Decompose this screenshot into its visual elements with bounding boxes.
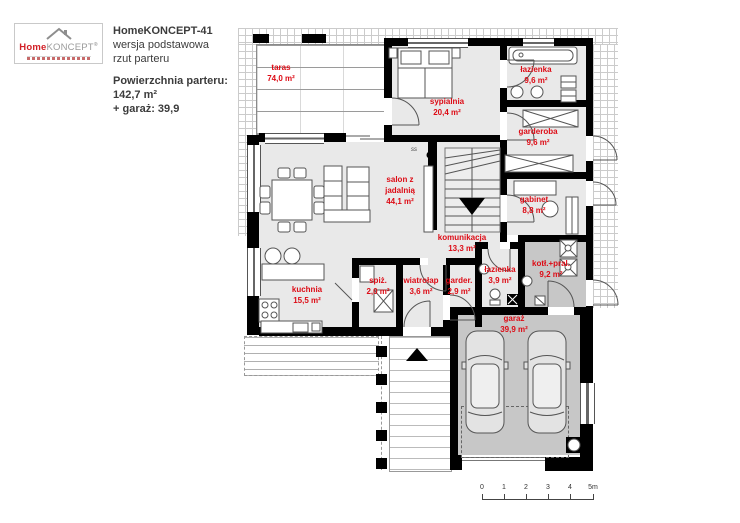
window-sypialnia — [408, 38, 468, 48]
room-label-taras: taras 74,0 m² — [267, 62, 295, 84]
room-label-garder: garder. 2,9 m² — [446, 275, 473, 297]
wall-garage-north — [574, 307, 593, 315]
scale-label: 5m — [588, 484, 598, 491]
door-opening-kotlownia — [586, 280, 593, 306]
stair-note-marker: ss — [411, 147, 417, 153]
window-garaz-east — [580, 383, 595, 424]
wall-east — [586, 38, 593, 138]
wall-interior — [518, 242, 525, 310]
room-label-lazienka-small: łazienka 3,9 m² — [484, 264, 515, 286]
area-value: 142,7 m² — [113, 88, 228, 102]
scale-bar: 0 1 2 3 4 5m — [480, 484, 602, 506]
floor-sypialnia — [392, 46, 500, 135]
project-version: wersja podstawowa — [113, 38, 228, 52]
wall-sypialnia-west — [384, 46, 392, 98]
scale-baseline — [482, 499, 593, 500]
wall-garage-west — [450, 315, 458, 470]
pergola-post — [376, 458, 387, 469]
wall-interior — [500, 107, 507, 112]
entrance-arrow — [406, 348, 428, 361]
pergola-post — [376, 402, 387, 413]
floor-plan-canvas: HomeKONCEPT® HomeKONCEPT-41 wersja podst… — [0, 0, 740, 523]
area-label: Powierzchnia parteru: — [113, 74, 228, 88]
wall-interior — [352, 302, 359, 327]
room-label-garderoba: garderoba 9,6 m² — [518, 126, 557, 148]
window-salon-west — [247, 145, 261, 212]
wall-interior — [518, 235, 586, 242]
sliding-door-taras — [346, 133, 384, 142]
drawing-title-block: HomeKONCEPT-41 wersja podstawowa rzut pa… — [113, 24, 228, 116]
door-opening-east-1 — [586, 136, 593, 161]
garage-door — [462, 457, 545, 465]
wall-interior — [500, 222, 507, 242]
wall-garage-east — [580, 315, 593, 383]
wall-interior — [500, 88, 507, 107]
room-label-spiz: spiż. 2,0 m² — [366, 275, 389, 297]
wall-interior — [384, 135, 500, 142]
scale-label: 2 — [524, 484, 528, 491]
room-label-gabinet: gabinet 8,8 m² — [520, 194, 548, 216]
wall-east — [586, 206, 593, 280]
homekoncept-logo: HomeKONCEPT® — [14, 23, 103, 64]
room-label-komunikacja: komunikacja 13,3 m² — [438, 232, 486, 254]
wall-interior — [500, 140, 507, 195]
window-salon-taras — [265, 133, 324, 144]
wall-interior — [443, 320, 450, 327]
wall-interior — [352, 258, 420, 265]
room-label-lazienka-top: łazienka 9,6 m² — [520, 64, 551, 86]
room-label-kuchnia: kuchnia 15,5 m² — [292, 284, 322, 306]
scale-tick — [593, 494, 594, 500]
scale-label: 1 — [502, 484, 506, 491]
entry-porch-deck — [244, 336, 379, 376]
taras-deck — [256, 44, 386, 135]
drawing-name: rzut parteru — [113, 52, 228, 66]
wall-west — [247, 212, 259, 248]
wall-west — [247, 135, 259, 145]
room-label-wiatrolap: wiatrołap 3,6 m² — [403, 275, 438, 297]
pergola-post — [376, 374, 387, 385]
garage-door-swing-zone — [461, 406, 569, 458]
logo-registered-mark: ® — [94, 42, 98, 48]
pergola-post — [376, 346, 387, 357]
door-opening-sypialnia — [384, 98, 392, 125]
wall-west — [247, 296, 259, 335]
door-opening-east-2 — [586, 181, 593, 206]
wall-interior — [446, 258, 478, 265]
wall-interior — [507, 100, 586, 107]
project-title: HomeKONCEPT-41 — [113, 24, 228, 38]
scale-label: 3 — [546, 484, 550, 491]
paving-hatch-right — [593, 44, 618, 308]
wall-taras — [324, 133, 346, 142]
pergola-post — [376, 430, 387, 441]
room-label-sypialnia: sypialnia 20,4 m² — [430, 96, 464, 118]
wall-salon-korytarz — [428, 142, 437, 230]
taras-pillar — [302, 34, 326, 43]
room-label-garaz: garaż 39,9 m² — [500, 313, 528, 335]
logo-koncept-text: KONCEPT — [46, 43, 93, 54]
window-lazienka — [523, 38, 554, 48]
wall-interior — [507, 172, 586, 179]
logo-tagline — [27, 56, 91, 60]
logo-home-text: Home — [19, 43, 46, 54]
logo-wordmark: HomeKONCEPT® — [19, 40, 97, 53]
wall-garage-north — [450, 307, 548, 315]
wall-garage-south — [545, 457, 593, 471]
floor-passage — [428, 230, 437, 265]
room-label-salon: salon z jadalnią 44,1 m² — [385, 174, 415, 207]
wall-south — [259, 327, 403, 336]
room-label-kotl-pral: kotł.+pral. 9,2 m² — [532, 258, 570, 280]
wall-interior — [396, 265, 403, 327]
wall-interior — [500, 46, 507, 60]
scale-label: 4 — [568, 484, 572, 491]
garage-area-value: + garaż: 39,9 — [113, 102, 228, 116]
scale-label: 0 — [480, 484, 484, 491]
wall-east — [586, 161, 593, 182]
taras-pillar — [253, 34, 269, 43]
window-kuchnia-west — [247, 248, 261, 296]
roof-icon — [44, 27, 74, 40]
